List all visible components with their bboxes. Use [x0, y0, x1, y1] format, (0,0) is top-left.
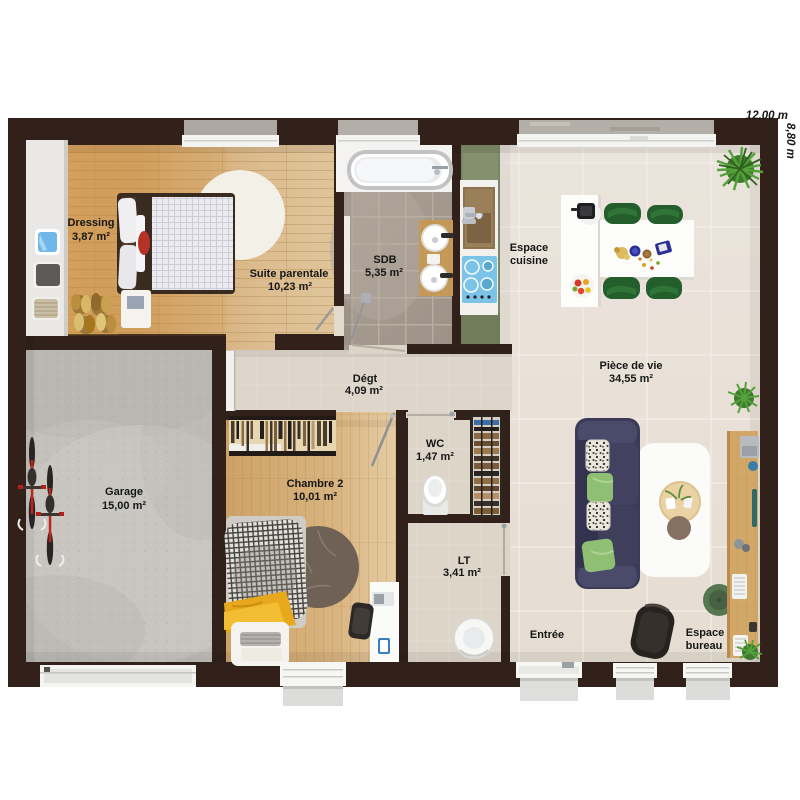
- svg-text:4,09 m²: 4,09 m²: [345, 385, 383, 397]
- svg-text:cuisine: cuisine: [510, 255, 548, 267]
- svg-text:bureau: bureau: [686, 640, 723, 652]
- svg-text:10,23 m²: 10,23 m²: [268, 281, 312, 293]
- svg-text:Dégt: Dégt: [353, 373, 378, 385]
- svg-text:8,80 m: 8,80 m: [784, 123, 796, 159]
- svg-text:12,00 m: 12,00 m: [746, 110, 788, 122]
- svg-text:Espace: Espace: [510, 242, 549, 254]
- svg-text:Dressing: Dressing: [67, 217, 114, 229]
- svg-text:Garage: Garage: [105, 486, 143, 498]
- svg-text:5,35 m²: 5,35 m²: [365, 267, 403, 279]
- svg-text:WC: WC: [426, 438, 444, 450]
- svg-text:SDB: SDB: [373, 254, 396, 266]
- svg-text:Espace: Espace: [686, 627, 725, 639]
- svg-text:15,00 m²: 15,00 m²: [102, 500, 146, 512]
- svg-text:1,47 m²: 1,47 m²: [416, 451, 454, 463]
- svg-text:3,41 m²: 3,41 m²: [443, 567, 481, 579]
- svg-text:Pièce de vie: Pièce de vie: [600, 360, 663, 372]
- svg-text:Chambre 2: Chambre 2: [287, 478, 344, 490]
- svg-text:34,55 m²: 34,55 m²: [609, 373, 653, 385]
- svg-text:3,87 m²: 3,87 m²: [72, 231, 110, 243]
- svg-text:Entrée: Entrée: [530, 629, 564, 641]
- svg-text:Suite parentale: Suite parentale: [250, 268, 329, 280]
- svg-text:10,01 m²: 10,01 m²: [293, 491, 337, 503]
- svg-text:LT: LT: [458, 555, 471, 567]
